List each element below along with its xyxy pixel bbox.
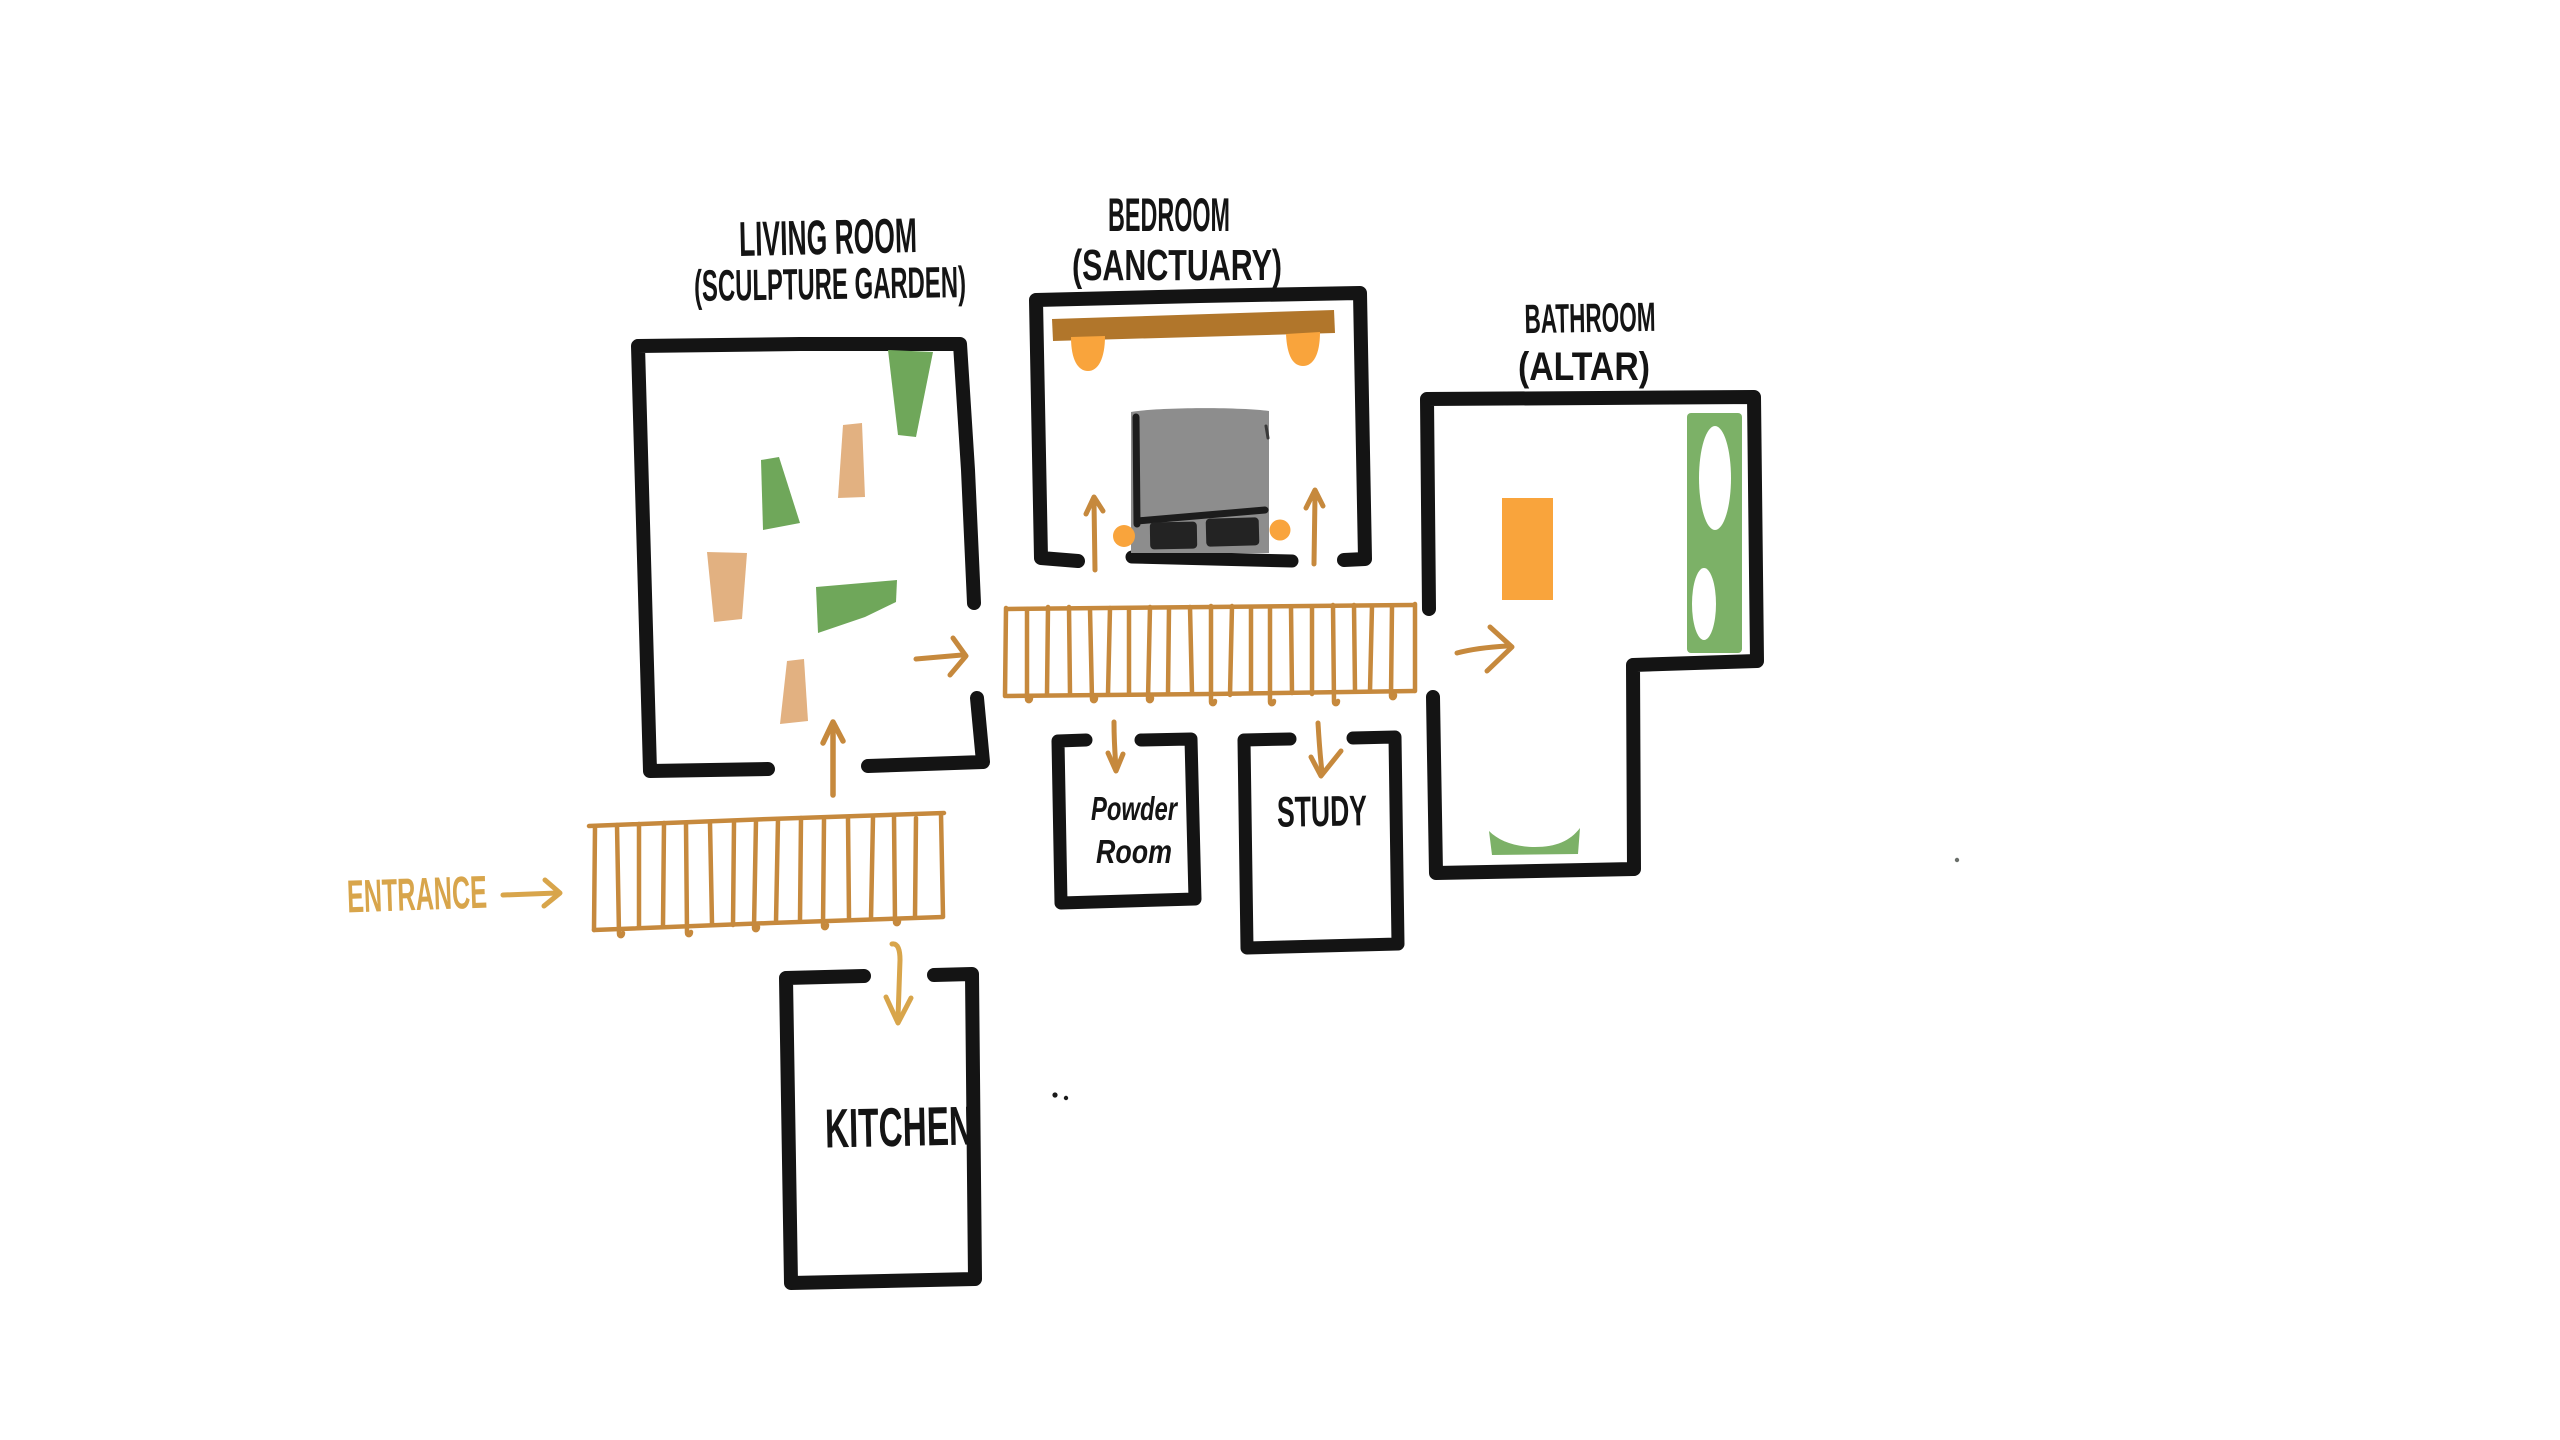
svg-text:BATHROOM: BATHROOM: [1524, 294, 1656, 342]
svg-text:KITCHEN: KITCHEN: [824, 1094, 973, 1159]
svg-text:STUDY: STUDY: [1277, 787, 1368, 837]
svg-text:(ALTAR): (ALTAR): [1518, 345, 1650, 389]
svg-text:BEDROOM: BEDROOM: [1108, 188, 1230, 241]
svg-text:ENTRANCE: ENTRANCE: [346, 866, 488, 923]
svg-text:Powder: Powder: [1091, 790, 1179, 827]
svg-text:Room: Room: [1096, 833, 1172, 870]
svg-text:(SANCTUARY): (SANCTUARY): [1072, 241, 1282, 290]
svg-text:(SCULPTURE GARDEN): (SCULPTURE GARDEN): [694, 258, 967, 311]
